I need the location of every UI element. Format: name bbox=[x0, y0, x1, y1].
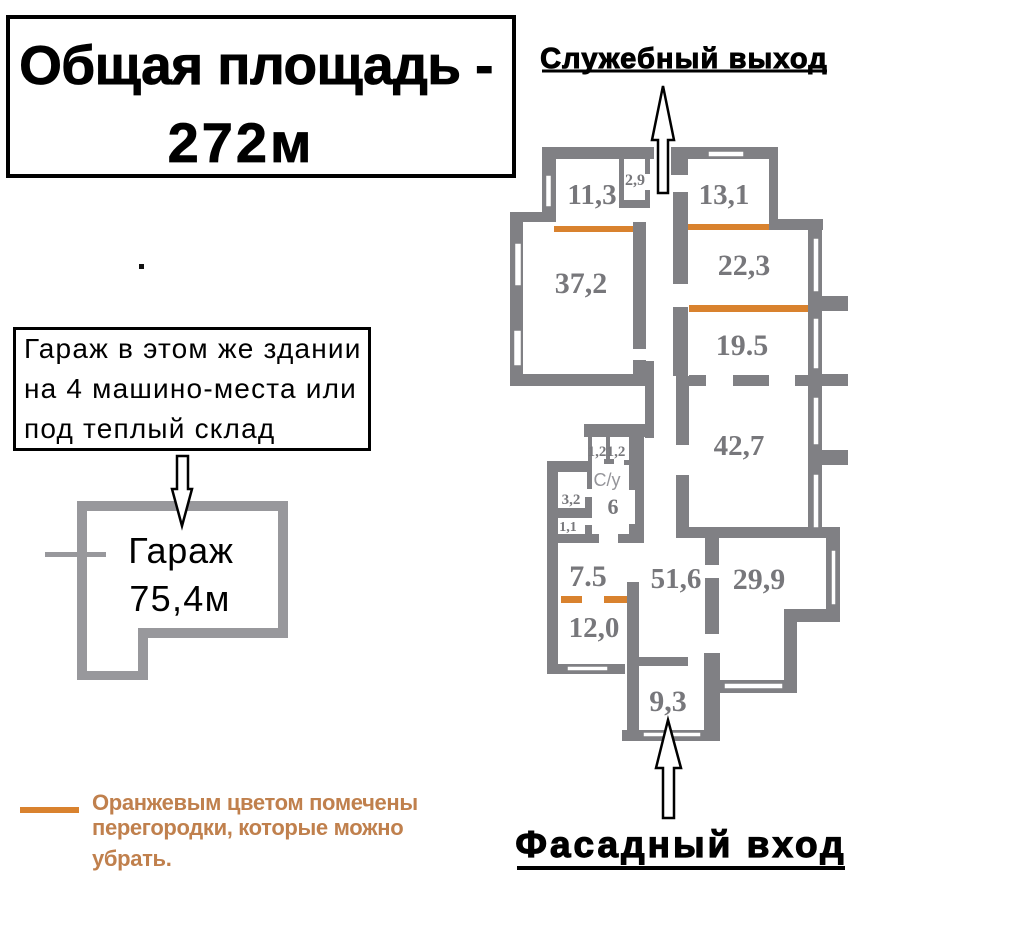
svg-text:1,2: 1,2 bbox=[588, 444, 607, 460]
svg-text:22,3: 22,3 bbox=[718, 249, 771, 282]
svg-text:1,1: 1,1 bbox=[559, 520, 577, 535]
svg-text:11,3: 11,3 bbox=[567, 179, 616, 211]
svg-text:убрать.: убрать. bbox=[92, 846, 171, 871]
svg-text:Гараж: Гараж bbox=[128, 530, 234, 571]
svg-text:Служебный выход: Служебный выход bbox=[540, 43, 828, 75]
svg-text:51,6: 51,6 bbox=[651, 563, 702, 595]
svg-text:13,1: 13,1 bbox=[699, 179, 750, 211]
svg-text:С/у: С/у bbox=[594, 470, 621, 490]
svg-text:1,2: 1,2 bbox=[607, 444, 626, 460]
svg-text:Оранжевым цветом помечены: Оранжевым цветом помечены bbox=[92, 790, 418, 815]
svg-text:6: 6 bbox=[608, 494, 619, 519]
svg-text:Гараж в этом же здании: Гараж в этом же здании bbox=[24, 333, 362, 364]
svg-text:42,7: 42,7 bbox=[714, 430, 765, 462]
svg-text:19.5: 19.5 bbox=[716, 329, 769, 362]
svg-text:Фасадный вход: Фасадный вход bbox=[515, 824, 846, 865]
svg-text:75,4м: 75,4м bbox=[129, 578, 230, 619]
svg-text:2,9: 2,9 bbox=[625, 172, 645, 189]
svg-text:7.5: 7.5 bbox=[569, 560, 607, 593]
svg-text:3,2: 3,2 bbox=[562, 492, 581, 508]
svg-text:Общая площадь -: Общая площадь - bbox=[19, 34, 493, 96]
svg-text:под теплый склад: под теплый склад bbox=[24, 413, 275, 444]
svg-text:на 4 машино-места или: на 4 машино-места или bbox=[24, 373, 357, 404]
svg-text:12,0: 12,0 bbox=[569, 612, 620, 644]
svg-text:перегородки, которые можно: перегородки, которые можно bbox=[92, 815, 403, 840]
svg-text:9,3: 9,3 bbox=[649, 685, 687, 718]
svg-text:37,2: 37,2 bbox=[555, 267, 608, 300]
svg-text:29,9: 29,9 bbox=[733, 563, 786, 596]
svg-text:272м: 272м bbox=[168, 111, 315, 174]
